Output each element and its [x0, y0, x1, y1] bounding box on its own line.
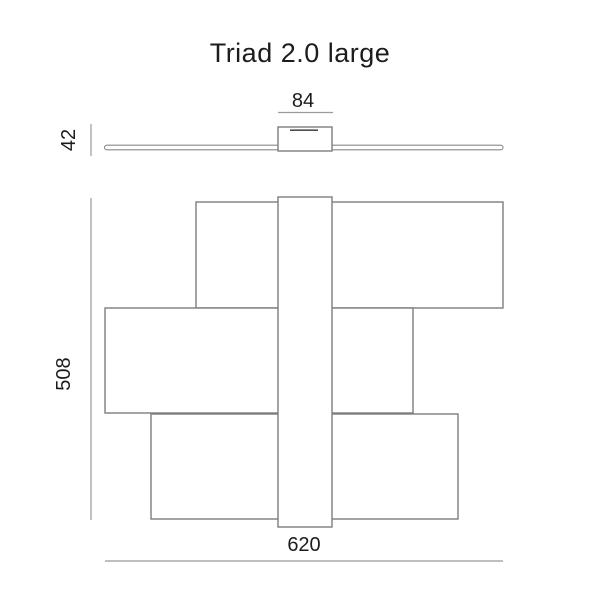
top-panel: [196, 202, 503, 308]
dim-42-label: 42: [58, 129, 80, 151]
front-view: 508 620: [53, 197, 503, 561]
dim-508-label: 508: [53, 357, 75, 390]
dim-84-label: 84: [292, 90, 314, 112]
dim-620-label: 620: [287, 534, 320, 556]
middle-panel: [105, 308, 413, 413]
dimension-drawing: 84 42 508 620: [0, 0, 600, 600]
center-bar: [278, 197, 332, 527]
spec-sheet: Triad 2.0 large 84 42: [0, 0, 600, 600]
top-profile-view: 84 42: [58, 90, 503, 156]
